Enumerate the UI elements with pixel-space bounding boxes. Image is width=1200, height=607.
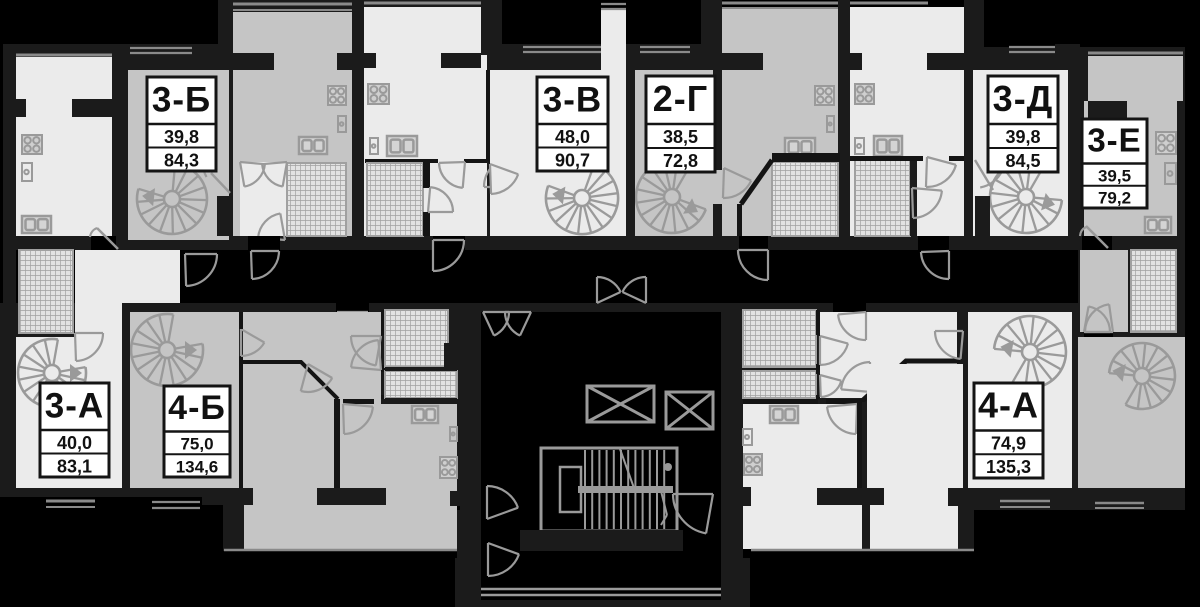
svg-text:2-Г: 2-Г [653, 78, 708, 119]
svg-text:4-А: 4-А [978, 385, 1039, 426]
svg-text:3-В: 3-В [543, 80, 602, 119]
svg-text:40,0: 40,0 [57, 433, 92, 453]
svg-text:3-Д: 3-Д [993, 78, 1054, 119]
svg-text:72,8: 72,8 [663, 151, 698, 171]
svg-text:38,5: 38,5 [663, 127, 698, 147]
svg-text:3-Е: 3-Е [1087, 122, 1141, 159]
svg-text:83,1: 83,1 [57, 456, 92, 476]
svg-text:39,5: 39,5 [1098, 166, 1131, 185]
svg-text:79,2: 79,2 [1098, 189, 1131, 208]
svg-text:39,8: 39,8 [164, 127, 199, 147]
svg-text:134,6: 134,6 [176, 457, 219, 476]
svg-text:3-А: 3-А [45, 386, 104, 425]
svg-text:3-Б: 3-Б [152, 80, 211, 119]
svg-text:39,8: 39,8 [1005, 127, 1040, 147]
svg-text:135,3: 135,3 [986, 457, 1031, 477]
svg-text:48,0: 48,0 [555, 127, 590, 147]
svg-text:75,0: 75,0 [180, 435, 213, 454]
svg-text:4-Б: 4-Б [168, 389, 226, 427]
svg-text:84,3: 84,3 [164, 150, 199, 170]
svg-text:84,5: 84,5 [1005, 151, 1040, 171]
svg-text:90,7: 90,7 [555, 150, 590, 170]
svg-text:74,9: 74,9 [991, 434, 1026, 454]
